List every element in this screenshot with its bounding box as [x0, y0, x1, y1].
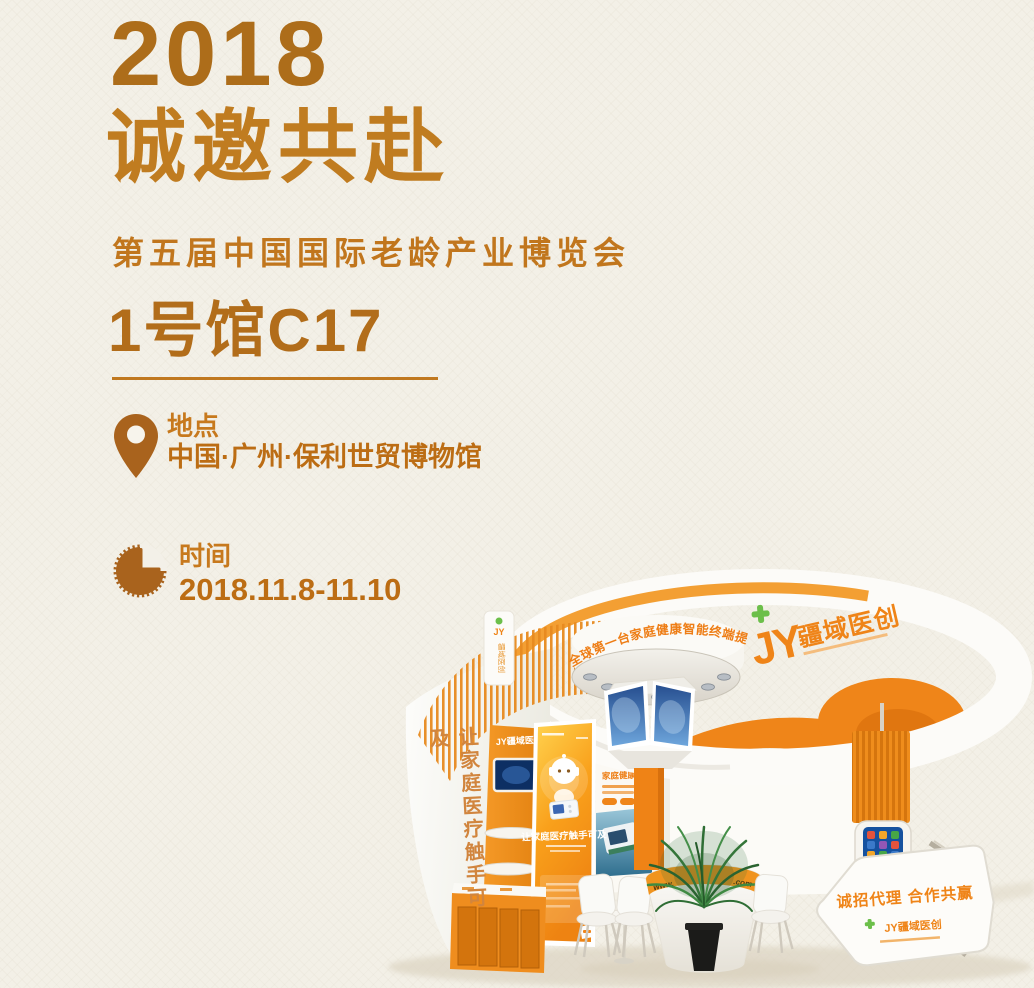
year-heading: 2018: [110, 6, 331, 103]
pillar-logo: JY 疆域医创: [484, 611, 514, 685]
invite-title: 诚邀共赴: [106, 102, 450, 194]
pillar-brand-name: 疆域医创: [497, 643, 507, 673]
location-block: 地点 中国·广州·保利世贸博物馆: [167, 412, 482, 473]
booth-illustration: 家庭健康智能终端: [400, 575, 1034, 988]
pillar-brand-initials: JY: [493, 627, 504, 637]
poster-page: 2018 诚邀共赴 第五届中国国际老龄产业博览会 1号馆C17 地点 中国·广州…: [0, 0, 1034, 988]
monitor-right: [650, 681, 695, 751]
location-pin-icon: [114, 414, 158, 478]
chair: [750, 874, 793, 953]
bp-monitor-graphic: [549, 800, 579, 820]
logo-leaf-icon-small: [496, 618, 503, 625]
time-value: 2018.11.8-11.10: [179, 571, 401, 608]
clock-icon: [110, 541, 170, 601]
logo-leaf-icon: [751, 604, 771, 624]
left-wall-slogan: 让家庭医疗触手可及: [423, 726, 491, 929]
location-label: 地点: [167, 412, 482, 441]
slat-column: [852, 731, 910, 823]
column-screen: [494, 759, 538, 791]
time-block: 时间 2018.11.8-11.10: [179, 542, 401, 608]
monitor-left: [604, 681, 650, 751]
title-underline: [112, 377, 438, 380]
expo-subtitle: 第五届中国国际老龄产业博览会: [112, 228, 630, 274]
hall-number: 1号馆C17: [108, 282, 383, 369]
location-value: 中国·广州·保利世贸博物馆: [167, 441, 482, 473]
time-label: 时间: [179, 542, 401, 571]
